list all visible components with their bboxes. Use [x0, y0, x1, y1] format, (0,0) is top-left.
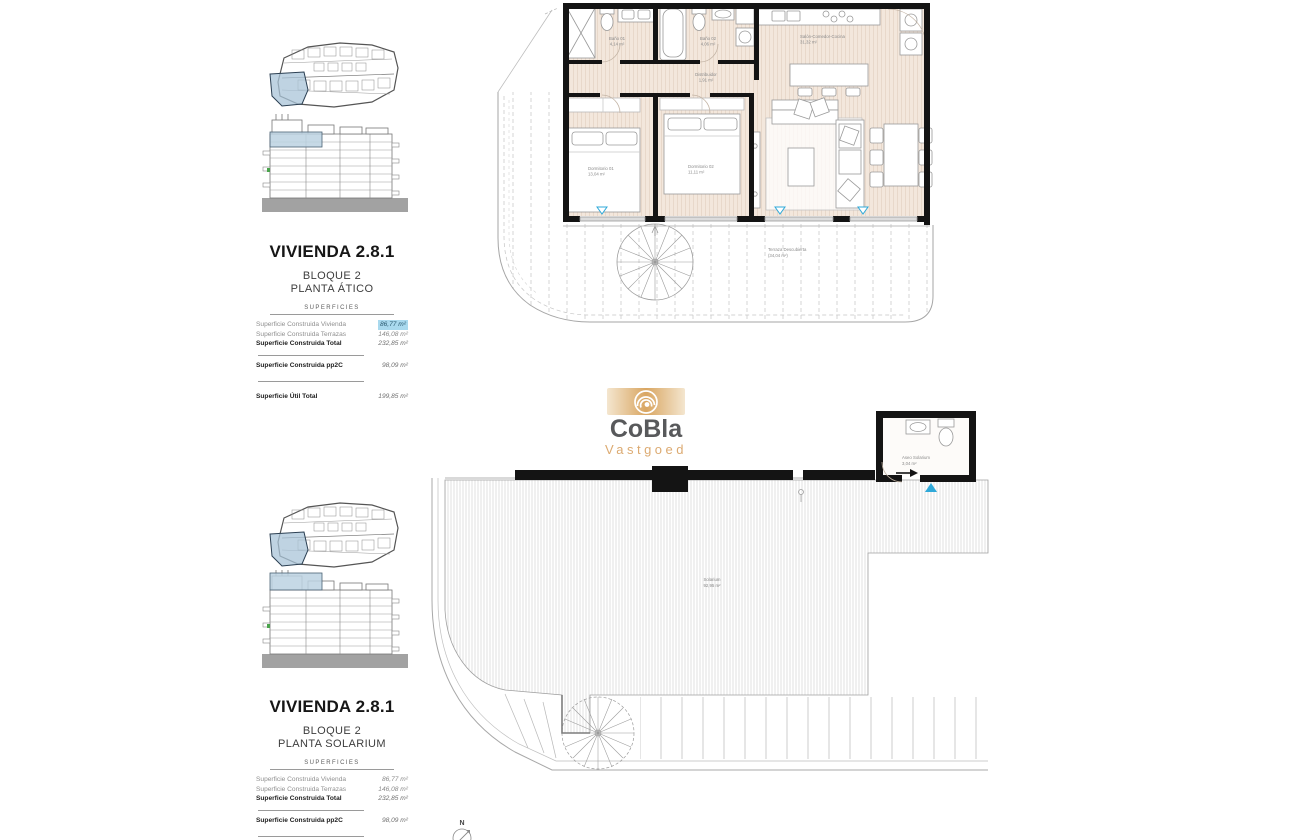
- elevation-highlight-atico: [270, 132, 322, 147]
- room-area-bano2: 4,06 m²: [701, 42, 716, 47]
- elevation-thumbnail-solarium: [262, 568, 408, 670]
- room-area-aseo: 3,04 m²: [902, 461, 917, 466]
- chair: [870, 128, 883, 143]
- table-row: Superficie Útil Total 199,85 m²: [256, 392, 408, 402]
- table-row: Superficie Construida Terrazas 146,08 m²: [256, 785, 408, 795]
- room-area-terraza: (34,04 m²): [768, 253, 788, 258]
- chair: [870, 172, 883, 187]
- coffee-table: [788, 148, 814, 186]
- row-label: Superficie Construida pp2C: [256, 816, 343, 826]
- info-panel-atico: VIVIENDA 2.8.1 BLOQUE 2 PLANTA ÁTICO SUP…: [256, 242, 408, 402]
- room-area-bano1: 4,14 m²: [610, 42, 625, 47]
- superficies-header: SUPERFICIES: [270, 760, 394, 770]
- room-area-distribuidor: 1,91 m²: [699, 78, 714, 83]
- room-area-salon: 31,32 m²: [800, 40, 818, 45]
- room-label-terraza: Terraza Descubierta: [768, 247, 807, 252]
- keyplan-highlighted-unit: [270, 532, 308, 566]
- row-label: Superficie Construida Terrazas: [256, 330, 346, 340]
- dining-table: [884, 124, 918, 186]
- table-row: Superficie Construida Total 232,85 m²: [256, 339, 408, 349]
- room-label-distribuidor: Distribuidor: [695, 72, 717, 77]
- north-arrow: N: [453, 820, 471, 840]
- stool: [822, 88, 836, 96]
- row-value: 199,85 m²: [378, 392, 408, 402]
- solarium-deck: [445, 480, 988, 733]
- block-label: BLOQUE 2: [256, 725, 408, 738]
- pillow: [572, 132, 603, 145]
- row-value: 86,77 m²: [382, 775, 408, 785]
- pillow: [606, 132, 637, 145]
- aseo-fixtures: [882, 418, 969, 482]
- row-label: Superficie Construida Total: [256, 339, 342, 349]
- row-value: 98,09 m²: [382, 361, 408, 371]
- row-value: 232,85 m²: [378, 339, 408, 349]
- room-label-bano2: Baño 02: [700, 36, 717, 41]
- areas-table: Superficie Construida Vivienda 86,77 m² …: [256, 320, 408, 402]
- walkway-band: [640, 697, 988, 759]
- unit-title: VIVIENDA 2.8.1: [256, 697, 408, 717]
- solarium-floorplan: N Solarium 92,95 m² Aseo Solarium 3,04 m…: [415, 385, 1000, 840]
- row-label: Superficie Construida pp2C: [256, 361, 343, 371]
- table-row: Superficie Construida Vivienda 86,77 m²: [256, 775, 408, 785]
- table-row: Superficie Construida pp2C 98,09 m²: [256, 816, 408, 826]
- room-label-dorm1: Dormitorio 01: [588, 166, 614, 171]
- divider: [258, 810, 364, 811]
- atico-floorplan: Baño 01 4,14 m² Baño 02 4,06 m² Distribu…: [440, 0, 950, 340]
- divider: [258, 381, 364, 382]
- room-label-solarium: Solarium: [704, 577, 721, 582]
- row-label: Superficie Construida Terrazas: [256, 785, 346, 795]
- room-area-dorm2: 11,11 m²: [688, 170, 705, 175]
- table-row: Superficie Construida Vivienda 86,77 m²: [256, 320, 408, 330]
- row-label: Superficie Construida Vivienda: [256, 320, 346, 330]
- elevation-thumbnail-atico: [262, 112, 408, 214]
- divider: [258, 836, 364, 837]
- cabinet: [736, 8, 754, 24]
- block-label: BLOQUE 2: [256, 270, 408, 283]
- row-label: Superficie Construida Total: [256, 794, 342, 804]
- row-label: Superficie Útil Total: [256, 392, 317, 402]
- elevation-highlight-solarium: [270, 573, 322, 590]
- areas-table: Superficie Construida Vivienda 86,77 m² …: [256, 775, 408, 840]
- unit-title: VIVIENDA 2.8.1: [256, 242, 408, 262]
- pillow: [704, 118, 737, 130]
- pillow: [668, 118, 701, 130]
- table-row: Superficie Construida Terrazas 146,08 m²: [256, 330, 408, 340]
- info-panel-solarium: VIVIENDA 2.8.1 BLOQUE 2 PLANTA SOLARIUM …: [256, 697, 408, 840]
- svg-text:N: N: [459, 820, 464, 827]
- keyplan-thumbnail-solarium: [268, 498, 402, 574]
- table-row: Superficie Construida Total 232,85 m²: [256, 794, 408, 804]
- ground-bar: [262, 198, 408, 212]
- row-value-highlighted: 86,77 m²: [378, 320, 408, 330]
- chair: [870, 150, 883, 165]
- floor-label: PLANTA ÁTICO: [256, 283, 408, 296]
- keyplan-highlighted-unit: [270, 72, 308, 106]
- kitchen-island: [790, 64, 868, 86]
- spiral-stair: [617, 224, 693, 300]
- room-area-dorm1: 13,04 m²: [588, 172, 606, 177]
- floorplan-sheet: VIVIENDA 2.8.1 BLOQUE 2 PLANTA ÁTICO SUP…: [0, 0, 1290, 840]
- room-label-aseo: Aseo Solarium: [902, 455, 930, 460]
- divider: [258, 355, 364, 356]
- room-label-bano1: Baño 01: [609, 36, 626, 41]
- ground-bar: [262, 654, 408, 668]
- row-label: Superficie Construida Vivienda: [256, 775, 346, 785]
- row-value: 98,09 m²: [382, 816, 408, 826]
- row-value: 146,08 m²: [378, 785, 408, 795]
- superficies-header: SUPERFICIES: [270, 305, 394, 315]
- room-area-solarium: 92,95 m²: [704, 583, 722, 588]
- table-row: Superficie Construida pp2C 98,09 m²: [256, 361, 408, 371]
- row-value: 232,85 m²: [378, 794, 408, 804]
- stool: [798, 88, 812, 96]
- room-label-salon: Salón-Comedor-Cocina: [800, 34, 846, 39]
- room-label-dorm2: Dormitorio 02: [688, 164, 714, 169]
- row-value: 146,08 m²: [378, 330, 408, 340]
- stool: [846, 88, 860, 96]
- keyplan-thumbnail-atico: [268, 38, 402, 114]
- floor-label: PLANTA SOLARIUM: [256, 738, 408, 751]
